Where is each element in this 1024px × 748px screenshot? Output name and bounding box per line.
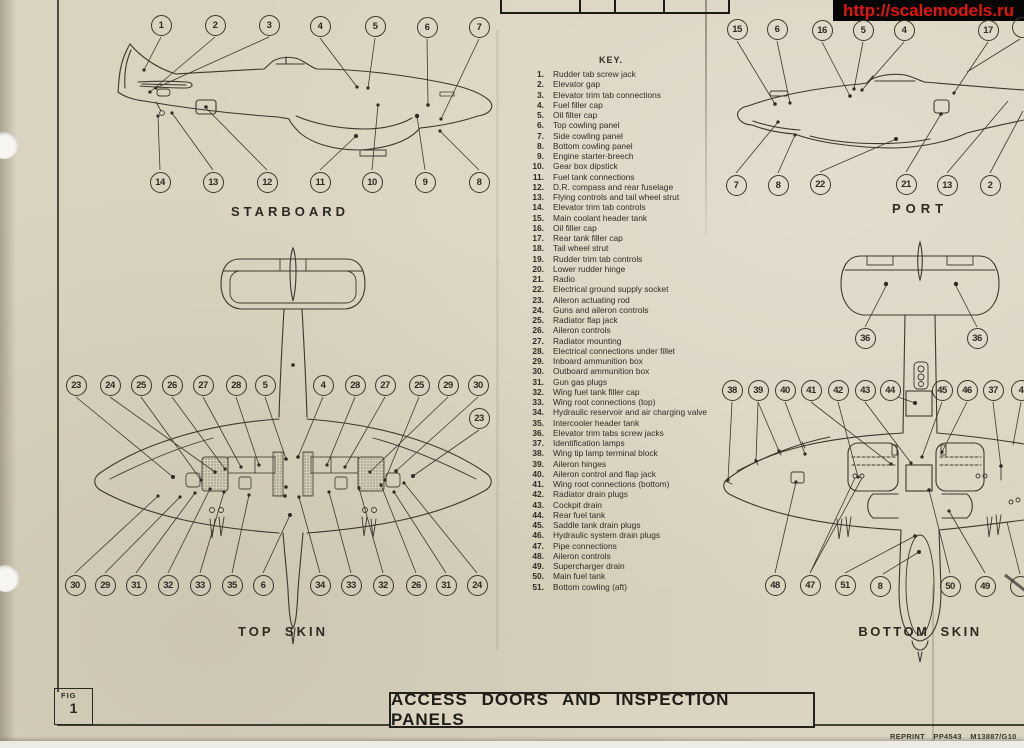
callout-circle: 42 [828, 380, 849, 401]
header-table-cell [581, 0, 616, 12]
key-item: 16.Oil filler cap [518, 223, 743, 233]
key-item: 24.Guns and aileron controls [518, 305, 743, 315]
callout-circle: 8 [469, 172, 490, 193]
figure-number: 1 [55, 700, 92, 716]
scanned-page: SECT. CHAP. http://scalemodels.ru [0, 0, 1024, 748]
callout-circle: 7 [726, 175, 747, 196]
callout-circle: 28 [226, 375, 247, 396]
callout-circle: 6 [417, 17, 438, 38]
key-item: 51.Bottom cowling (aft) [518, 582, 743, 592]
key-legend: KEY. 1.Rudder tab screw jack2.Elevator g… [518, 55, 743, 592]
key-item: 3.Elevator trim tab connections [518, 90, 743, 100]
callout-circle: 27 [375, 375, 396, 396]
callout-circle: 21 [896, 174, 917, 195]
key-item: 46.Hydraulic system drain plugs [518, 530, 743, 540]
key-item: 44.Rear fuel tank [518, 510, 743, 520]
key-item: 34.Hydraulic reservoir and air charging … [518, 407, 743, 417]
key-item: 10.Gear box dipstick [518, 161, 743, 171]
callout-circle: 12 [257, 172, 278, 193]
callout-circle: 51 [835, 575, 856, 596]
key-item: 39.Aileron hinges [518, 459, 743, 469]
callout-circle: 29 [95, 575, 116, 596]
callout-circle: 41 [801, 380, 822, 401]
callout-circle: 39 [748, 380, 769, 401]
key-item: 42.Radiator drain plugs [518, 489, 743, 499]
header-table-cell [502, 0, 581, 12]
callout-circle: 50 [940, 576, 961, 597]
callout-circle: 26 [162, 375, 183, 396]
callout-circle: 46 [957, 380, 978, 401]
key-item: 29.Inboard ammunition box [518, 356, 743, 366]
callout-circle: 16 [812, 20, 833, 41]
callout-circle: 43 [855, 380, 876, 401]
callout-circle: 24 [467, 575, 488, 596]
callout-circle: 32 [373, 575, 394, 596]
key-item: 17.Rear tank filler cap [518, 233, 743, 243]
key-item: 25.Radiator flap jack [518, 315, 743, 325]
key-item: 5.Oil filter cap [518, 110, 743, 120]
key-item: 6.Top cowling panel [518, 120, 743, 130]
callout-circle: 30 [65, 575, 86, 596]
callout-circle: 30 [468, 375, 489, 396]
key-item: 15.Main coolant header tank [518, 213, 743, 223]
callout-circle: 3 [259, 15, 280, 36]
key-title: KEY. [546, 55, 676, 65]
callout-circle: 5 [853, 20, 874, 41]
key-item: 21.Radio [518, 274, 743, 284]
callout-circle: 33 [341, 575, 362, 596]
bottom-skin-view-label: BOTTOM SKIN [838, 624, 1002, 639]
callout-circle: 22 [810, 174, 831, 195]
key-item: 50.Main fuel tank [518, 571, 743, 581]
reprint-reference: REPRINT PP4543 M13887/G10 [890, 732, 1017, 741]
callout-circle: 33 [190, 575, 211, 596]
key-item: 47.Pipe connections [518, 541, 743, 551]
callout-circle: 2 [205, 15, 226, 36]
callout-circle: 32 [158, 575, 179, 596]
callout-circle: 1 [151, 15, 172, 36]
top-skin-view-label: TOP SKIN [208, 624, 358, 639]
key-item: 1.Rudder tab screw jack [518, 69, 743, 79]
figure-label: FIG [55, 689, 92, 700]
header-table-cell: SECT. [616, 0, 665, 12]
key-list: 1.Rudder tab screw jack2.Elevator gap3.E… [518, 69, 743, 592]
key-item: 8.Bottom cowling panel [518, 141, 743, 151]
key-item: 45.Saddle tank drain plugs [518, 520, 743, 530]
port-view-label: PORT [878, 201, 962, 216]
callout-circle: 25 [409, 375, 430, 396]
callout-circle: 44 [880, 380, 901, 401]
callout-circle: 4 [310, 16, 331, 37]
callout-circle: 37 [983, 380, 1004, 401]
header-table-cell: CHAP. [665, 0, 728, 12]
key-item: 11.Fuel tank connections [518, 172, 743, 182]
key-item: 19.Rudder trim tab controls [518, 254, 743, 264]
key-item: 43.Cockpit drain [518, 500, 743, 510]
callout-circle: 47 [800, 575, 821, 596]
drawing-title: ACCESS DOORS AND INSPECTION PANELS [391, 690, 813, 730]
key-item: 23.Aileron actuating rod [518, 295, 743, 305]
callout-circle: 17 [978, 20, 999, 41]
key-item: 35.Intercooler header tank [518, 418, 743, 428]
callout-circle: 14 [150, 172, 171, 193]
callout-circle: 10 [362, 172, 383, 193]
key-item: 38.Wing tip lamp terminal block [518, 448, 743, 458]
callout-circle: 23 [66, 375, 87, 396]
callout-circle: 8 [870, 576, 891, 597]
key-item: 28.Electrical connections under fillet [518, 346, 743, 356]
key-item: 32.Wing fuel tank filler cap [518, 387, 743, 397]
key-item: 14.Elevator trim tab controls [518, 202, 743, 212]
key-item: 40.Aileron control and flap jack [518, 469, 743, 479]
key-item: 30.Outboard ammunition box [518, 366, 743, 376]
callout-circle: 9 [415, 172, 436, 193]
callout-circle: 24 [100, 375, 121, 396]
scan-edge-strip [0, 741, 1024, 748]
figure-number-box: FIG 1 [54, 688, 93, 725]
port-view-drawing [715, 15, 1024, 205]
callout-circle: 7 [469, 17, 490, 38]
callout-circle: 25 [131, 375, 152, 396]
callout-circle: 45 [932, 380, 953, 401]
callout-circle: 40 [775, 380, 796, 401]
key-item: 33.Wing root connections (top) [518, 397, 743, 407]
key-item: 22.Electrical ground supply socket [518, 284, 743, 294]
callout-circle: 36 [855, 328, 876, 349]
callout-circle: 35 [222, 575, 243, 596]
key-item: 26.Aileron controls [518, 325, 743, 335]
callout-circle: 4 [894, 20, 915, 41]
header-table: SECT. CHAP. [500, 0, 730, 14]
key-item: 49.Supercharger drain [518, 561, 743, 571]
callout-circle: 6 [767, 19, 788, 40]
key-item: 7.Side cowling panel [518, 131, 743, 141]
starboard-view-drawing [60, 12, 510, 224]
callout-circle: 13 [203, 172, 224, 193]
key-item: 2.Elevator gap [518, 79, 743, 89]
callout-circle: 5 [255, 375, 276, 396]
callout-circle: 27 [193, 375, 214, 396]
callout-circle: 29 [438, 375, 459, 396]
callout-circle: 13 [937, 175, 958, 196]
callout-circle: 11 [310, 172, 331, 193]
page-edge-shadow [0, 0, 16, 748]
bottom-skin-view-drawing [715, 240, 1024, 665]
callout-circle: 5 [365, 16, 386, 37]
key-item: 12.D.R. compass and rear fuselage [518, 182, 743, 192]
drawing-title-box: ACCESS DOORS AND INSPECTION PANELS [389, 692, 815, 728]
callout-circle: 2 [980, 175, 1001, 196]
callout-circle: 48 [765, 575, 786, 596]
key-item: 31.Gun gas plugs [518, 377, 743, 387]
callout-circle: 31 [126, 575, 147, 596]
key-item: 18.Tail wheel strut [518, 243, 743, 253]
key-item: 37.Identification lamps [518, 438, 743, 448]
punch-hole [0, 565, 19, 592]
starboard-view-label: STARBOARD [215, 204, 365, 219]
key-item: 41.Wing root connections (bottom) [518, 479, 743, 489]
callout-circle: 38 [722, 380, 743, 401]
callout-circle: 26 [406, 575, 427, 596]
key-item: 20.Lower rudder hinge [518, 264, 743, 274]
callout-circle: 23 [469, 408, 490, 429]
callout-circle: 4 [313, 375, 334, 396]
key-item: 13.Flying controls and tail wheel strut [518, 192, 743, 202]
callout-circle: 8 [768, 175, 789, 196]
callout-circle: 28 [345, 375, 366, 396]
callout-circle: 15 [727, 19, 748, 40]
key-item: 27.Radiator mounting [518, 336, 743, 346]
key-item: 48.Aileron controls [518, 551, 743, 561]
callout-circle: 34 [310, 575, 331, 596]
callout-circle: 31 [436, 575, 457, 596]
key-item: 9.Engine starter-breech [518, 151, 743, 161]
key-item: 4.Fuel filler cap [518, 100, 743, 110]
top-skin-view-drawing [58, 245, 508, 605]
key-item: 36.Elevator trim tabs screw jacks [518, 428, 743, 438]
callout-circle: 49 [975, 576, 996, 597]
callout-circle: 36 [967, 328, 988, 349]
callout-circle: 6 [253, 575, 274, 596]
